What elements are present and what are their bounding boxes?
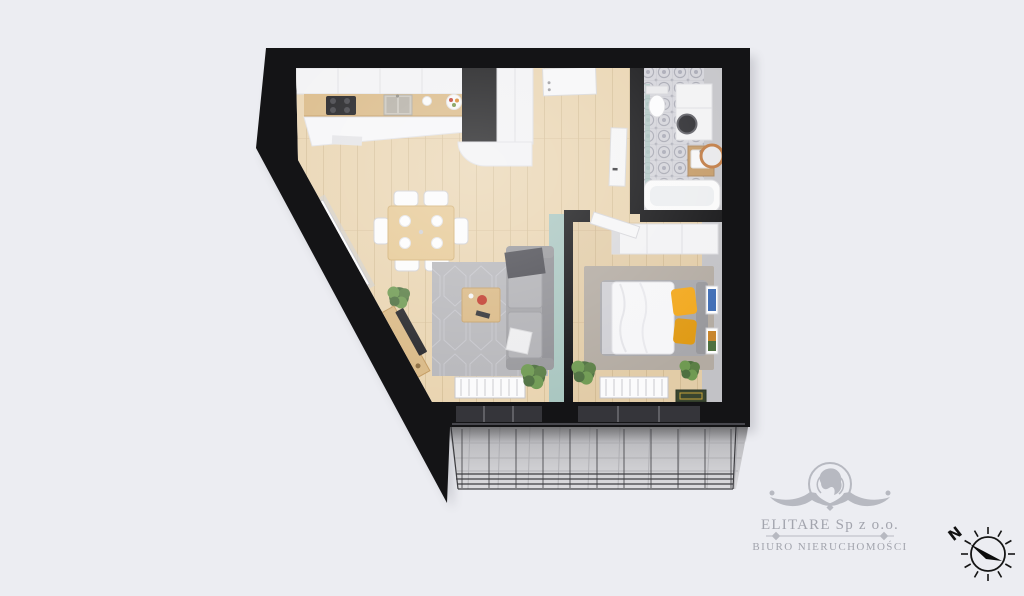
floorplan-page: ELITARE Sp z o.o. BIURO NIERUCHOMOŚCI N [0, 0, 1024, 596]
company-tagline: BIURO NIERUCHOMOŚCI [752, 541, 907, 553]
floorplan-canvas: ELITARE Sp z o.o. BIURO NIERUCHOMOŚCI N [0, 0, 1024, 596]
company-name: ELITARE Sp z o.o. [761, 517, 899, 533]
balcony [449, 427, 748, 489]
balcony-wall-shadow [449, 427, 748, 443]
